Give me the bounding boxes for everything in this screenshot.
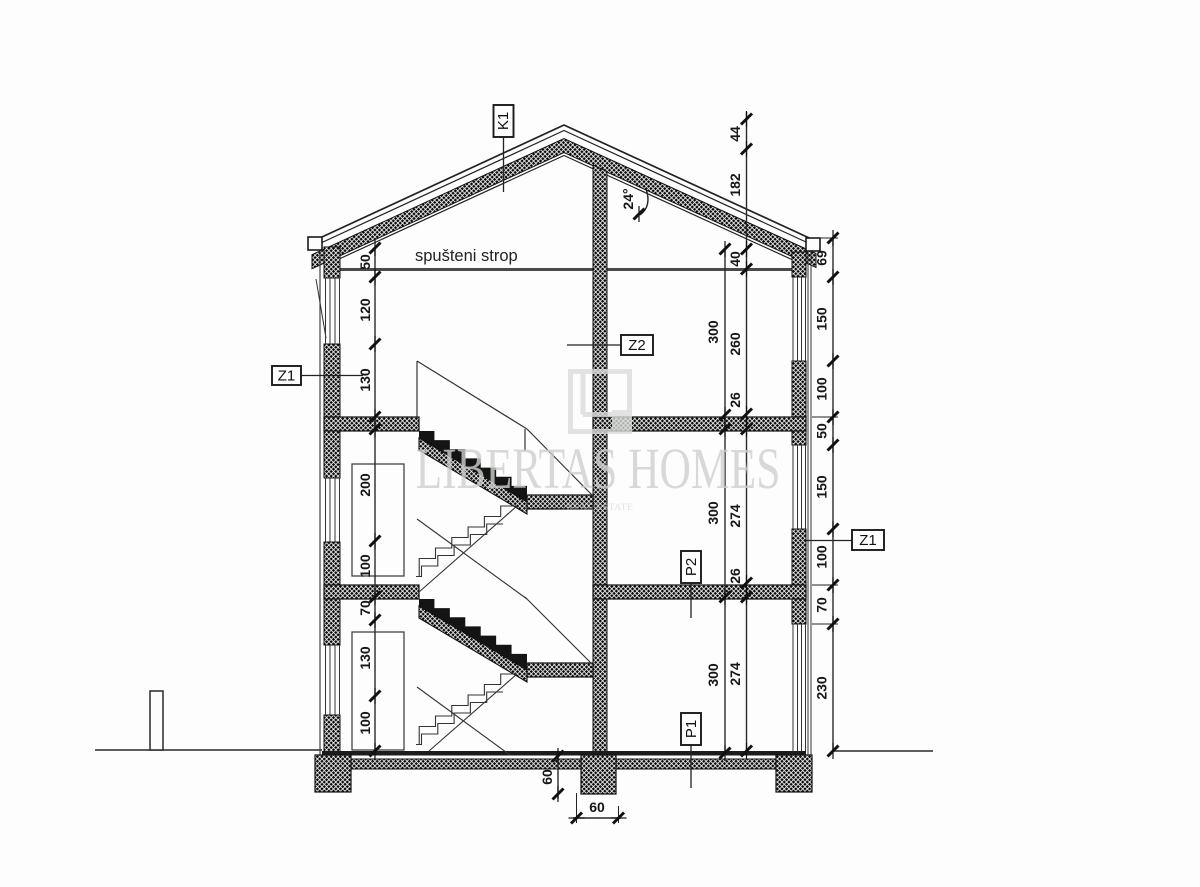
svg-text:300: 300 xyxy=(705,501,721,525)
svg-text:120: 120 xyxy=(357,298,373,322)
svg-text:LIBERTAS HOMES: LIBERTAS HOMES xyxy=(416,437,781,501)
svg-text:230: 230 xyxy=(814,676,830,700)
svg-text:REAL ESTATE: REAL ESTATE xyxy=(567,503,634,513)
svg-text:69: 69 xyxy=(814,250,830,266)
svg-text:Z1: Z1 xyxy=(278,368,296,385)
svg-text:100: 100 xyxy=(357,711,373,735)
svg-text:100: 100 xyxy=(814,377,830,401)
svg-text:K1: K1 xyxy=(495,112,512,130)
svg-text:150: 150 xyxy=(814,475,830,499)
svg-text:Z2: Z2 xyxy=(628,337,646,354)
svg-text:Z1: Z1 xyxy=(859,532,877,549)
svg-text:182: 182 xyxy=(727,173,743,197)
svg-text:60: 60 xyxy=(539,769,555,785)
svg-text:40: 40 xyxy=(727,251,743,267)
svg-text:300: 300 xyxy=(705,320,721,344)
svg-text:P2: P2 xyxy=(683,558,700,576)
svg-text:60: 60 xyxy=(589,799,605,815)
svg-text:50: 50 xyxy=(357,254,373,270)
svg-text:274: 274 xyxy=(727,662,743,686)
svg-text:P1: P1 xyxy=(683,720,700,738)
svg-text:spušteni strop: spušteni strop xyxy=(415,247,518,265)
svg-text:70: 70 xyxy=(814,597,830,613)
svg-text:274: 274 xyxy=(727,504,743,528)
svg-text:24°: 24° xyxy=(620,188,636,209)
svg-text:70: 70 xyxy=(357,600,373,616)
svg-text:300: 300 xyxy=(705,663,721,687)
svg-text:200: 200 xyxy=(357,473,373,497)
svg-text:26: 26 xyxy=(727,568,743,584)
svg-text:44: 44 xyxy=(727,126,743,142)
svg-text:130: 130 xyxy=(357,368,373,392)
svg-text:50: 50 xyxy=(814,423,830,439)
svg-text:100: 100 xyxy=(357,554,373,578)
svg-text:130: 130 xyxy=(357,646,373,670)
svg-text:150: 150 xyxy=(814,307,830,331)
svg-text:100: 100 xyxy=(814,545,830,569)
svg-text:260: 260 xyxy=(727,332,743,356)
svg-text:26: 26 xyxy=(727,392,743,408)
